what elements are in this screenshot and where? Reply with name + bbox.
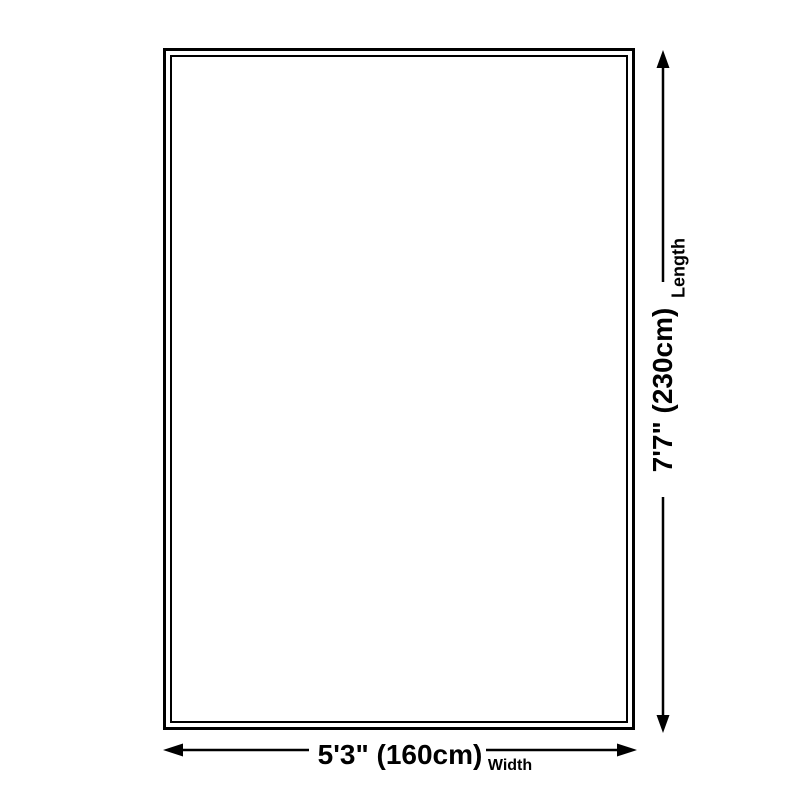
width-arrow-right-icon: [486, 744, 637, 757]
rug-dimension-diagram: Length 7'7" (230cm) 5'3" (160cm) Width: [0, 0, 800, 800]
width-axis-label: Width: [488, 757, 532, 775]
width-arrow-left-icon: [163, 744, 309, 757]
width-value: 5'3" (160cm): [318, 739, 483, 771]
dimension-arrows: [0, 0, 800, 800]
length-value: 7'7" (230cm): [647, 308, 679, 473]
length-arrow-down-icon: [657, 497, 670, 733]
length-axis-label: Length: [669, 238, 690, 298]
